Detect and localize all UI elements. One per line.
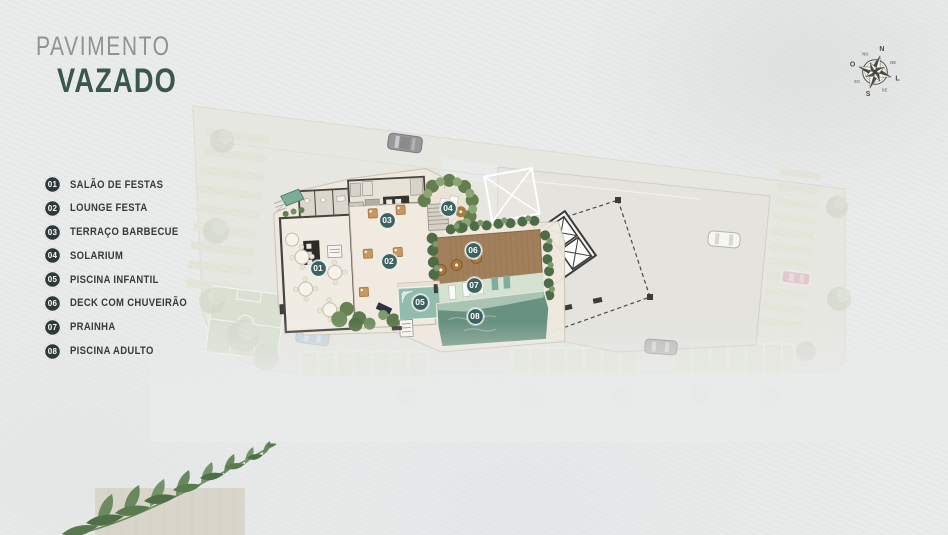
legend-badge: 07	[44, 319, 61, 336]
plan-marker-03: 03	[379, 212, 396, 229]
legend-label: DECK COM CHUVEIRÃO	[70, 297, 187, 309]
legend-item-terraco-barbecue: 03 TERRAÇO BARBECUE	[44, 224, 206, 241]
legend-badge: 06	[44, 295, 61, 312]
page: PAVIMENTO VAZADO 01 SALÃO DE FESTAS 02 L…	[0, 0, 948, 535]
plan-marker-08: 08	[467, 308, 484, 325]
legend-badge: 01	[44, 176, 61, 193]
compass-so: SO	[854, 79, 861, 84]
legend-badge: 08	[44, 343, 61, 360]
legend-item-lounge-festa: 02 LOUNGE FESTA	[44, 200, 206, 217]
legend-label: LOUNGE FESTA	[70, 202, 148, 214]
page-title: PAVIMENTO VAZADO	[36, 32, 209, 100]
compass-no: NO	[862, 51, 869, 56]
car-icon-pink	[781, 270, 810, 285]
legend-label: SALÃO DE FESTAS	[70, 179, 163, 191]
plan-marker-01: 01	[310, 260, 327, 277]
render-fade	[150, 322, 948, 442]
compass-s: S	[866, 91, 871, 98]
legend: 01 SALÃO DE FESTAS 02 LOUNGE FESTA 03 TE…	[44, 176, 206, 360]
legend-item-prainha: 07 PRAINHA	[44, 319, 206, 336]
compass-n: N	[879, 46, 884, 53]
title-line-1: PAVIMENTO	[36, 32, 171, 61]
fern-photo	[36, 428, 326, 535]
legend-item-solarium: 04 SOLARIUM	[44, 247, 206, 264]
car-icon-right	[707, 231, 740, 249]
plan-marker-04: 04	[440, 200, 457, 217]
plan-marker-05: 05	[412, 294, 429, 311]
legend-item-salao-de-festas: 01 SALÃO DE FESTAS	[44, 176, 206, 193]
compass-l: L	[895, 75, 900, 82]
compass-se: SE	[882, 88, 888, 93]
legend-label: PRAINHA	[70, 321, 116, 333]
legend-label: PISCINA INFANTIL	[70, 274, 159, 286]
legend-item-deck-com-chuveirao: 06 DECK COM CHUVEIRÃO	[44, 295, 206, 312]
legend-badge: 05	[44, 271, 61, 288]
legend-badge: 02	[44, 200, 61, 217]
legend-item-piscina-adulto: 08 PISCINA ADULTO	[44, 343, 206, 360]
legend-badge: 03	[44, 224, 61, 241]
legend-badge: 04	[44, 247, 61, 264]
legend-label: SOLARIUM	[70, 250, 123, 262]
legend-label: PISCINA ADULTO	[70, 345, 154, 357]
title-line-2: VAZADO	[57, 63, 177, 100]
legend-item-piscina-infantil: 05 PISCINA INFANTIL	[44, 271, 206, 288]
plan-marker-07: 07	[466, 277, 483, 294]
compass-ne: NE	[890, 60, 896, 65]
compass-o: O	[850, 62, 856, 69]
plan-marker-06: 06	[465, 242, 482, 259]
plan-marker-02: 02	[381, 253, 398, 270]
compass-rose: N O L S NE SE SO NO	[845, 42, 905, 102]
compass-star	[854, 51, 896, 93]
ramp-x-brace	[484, 168, 539, 222]
legend-label: TERRAÇO BARBECUE	[70, 226, 179, 238]
